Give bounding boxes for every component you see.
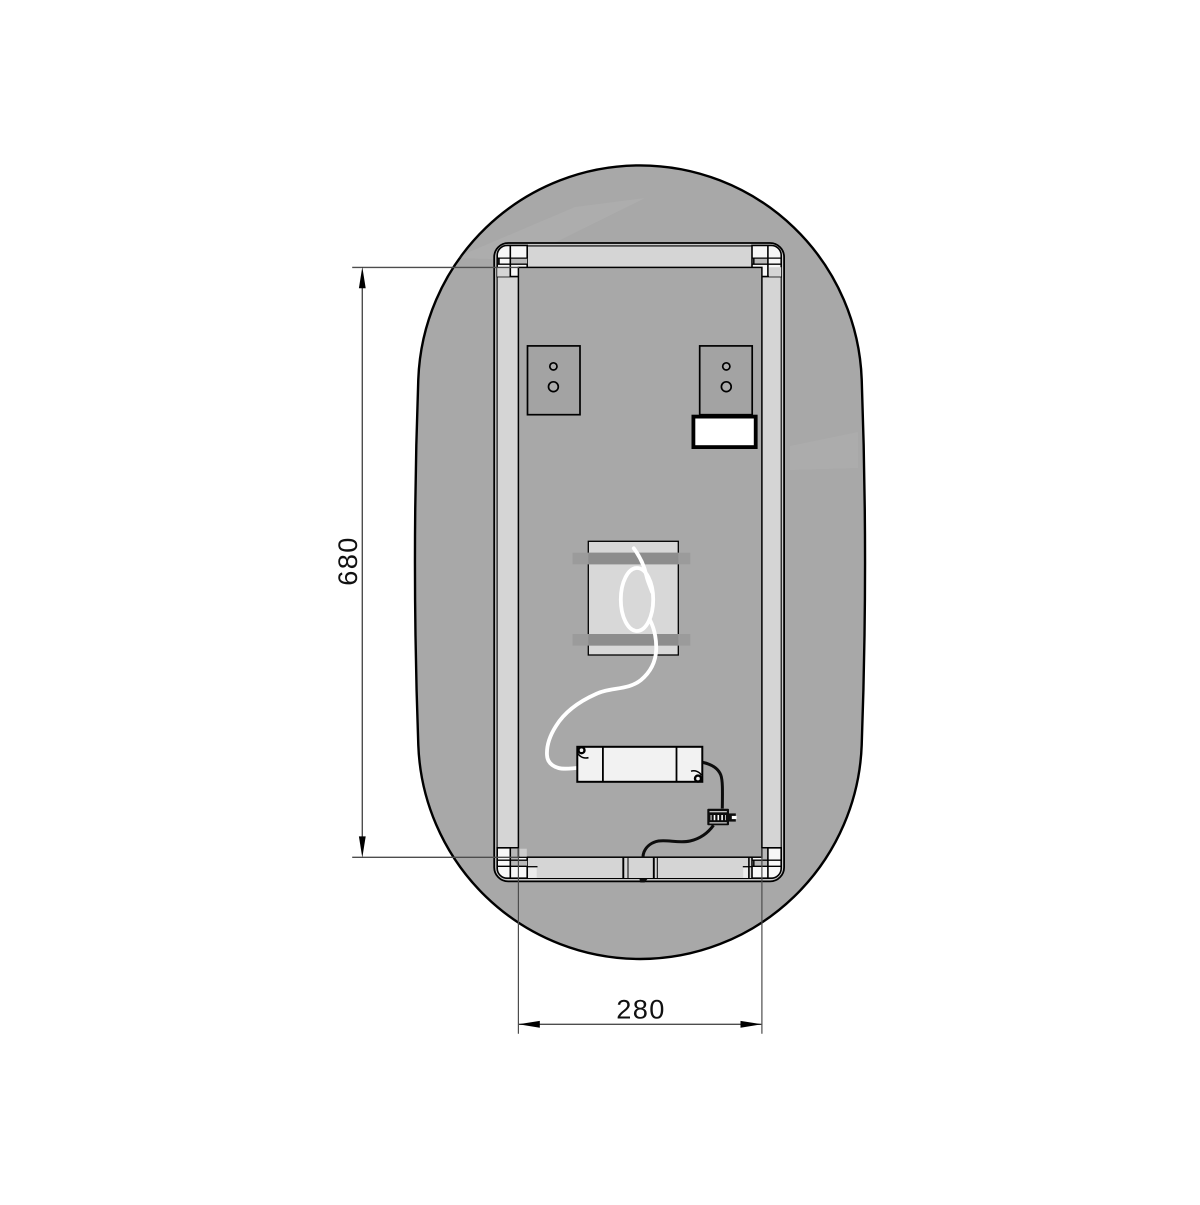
svg-text:280: 280 [616,994,666,1025]
svg-text:680: 680 [332,536,363,586]
